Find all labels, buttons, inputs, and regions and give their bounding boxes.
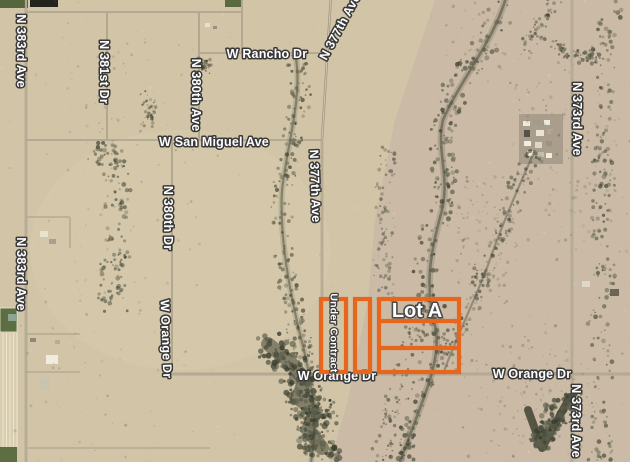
road-label-w-orange-dr-west: W Orange Dr (158, 299, 175, 378)
road-label-n-383rd-ave-bottom: N 383rd Ave (14, 237, 28, 311)
road-label-w-san-miguel-ave: W San Miguel Ave (159, 135, 269, 149)
building (49, 239, 56, 244)
road-label-n-381st-dr: N 381st Dr (97, 40, 111, 104)
road-label-n-373rd-ave-top: N 373rd Ave (570, 82, 584, 156)
building (536, 130, 544, 136)
building (546, 141, 552, 146)
building (582, 281, 590, 287)
field-green (225, 0, 241, 7)
under-contract-label: Under Contract (328, 293, 340, 373)
road-label-n-373rd-ave-bottom: N 373rd Ave (569, 384, 583, 458)
road-label-n-377th-ave-mid: N 377th Ave (307, 149, 324, 222)
building (205, 23, 210, 27)
building (535, 142, 542, 148)
building (8, 314, 17, 321)
road-label-n-380th-ave: N 380th Ave (189, 59, 203, 132)
satellite-map: N 383rd Ave N 383rd Ave N 381st Dr N 380… (0, 0, 630, 462)
road-label-n-383rd-ave-top: N 383rd Ave (14, 14, 28, 88)
road-label-w-rancho-dr: W Rancho Dr (227, 47, 308, 61)
building (40, 231, 48, 237)
satellite-map-canvas: N 383rd Ave N 383rd Ave N 381st Dr N 380… (0, 0, 630, 462)
building (533, 119, 541, 125)
building (30, 338, 36, 342)
road-label-w-orange-dr-east: W Orange Dr (493, 367, 572, 381)
building (610, 289, 619, 296)
building (39, 378, 50, 390)
road-label-n-380th-dr: N 380th Dr (161, 186, 175, 251)
building (546, 153, 552, 158)
lot-a-label: Lot A (392, 300, 442, 322)
building (55, 340, 60, 344)
building (46, 355, 58, 364)
building (213, 26, 217, 29)
building (524, 141, 531, 146)
field-green (0, 447, 17, 462)
